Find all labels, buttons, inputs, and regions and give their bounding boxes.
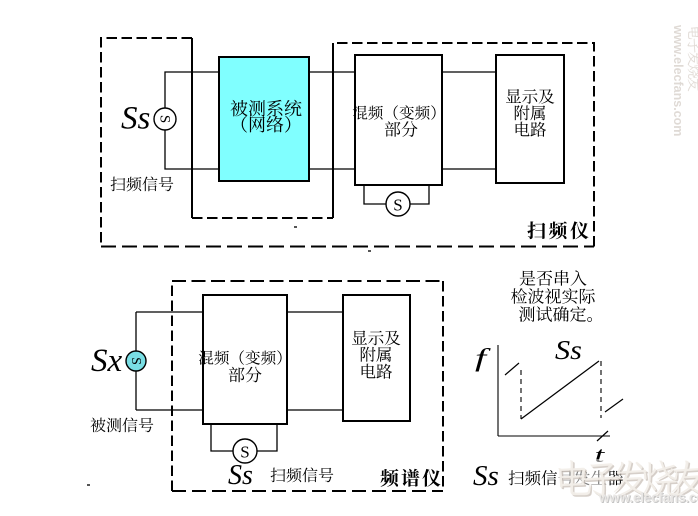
- svg-text:www.elecfans.com: www.elecfans.com: [598, 490, 698, 505]
- svg-text:S: S: [240, 443, 249, 462]
- svg-text:S: S: [157, 115, 173, 123]
- svg-text:Sx: Sx: [91, 343, 123, 379]
- svg-text:Ss: Ss: [228, 460, 253, 491]
- svg-text:Ss: Ss: [121, 101, 150, 137]
- svg-text:Ss: Ss: [473, 460, 499, 492]
- svg-text:Ss: Ss: [555, 335, 582, 365]
- svg-text:S: S: [393, 196, 402, 215]
- svg-text:www.elecfans.com: www.elecfans.com: [671, 24, 685, 136]
- svg-text:S: S: [128, 357, 143, 365]
